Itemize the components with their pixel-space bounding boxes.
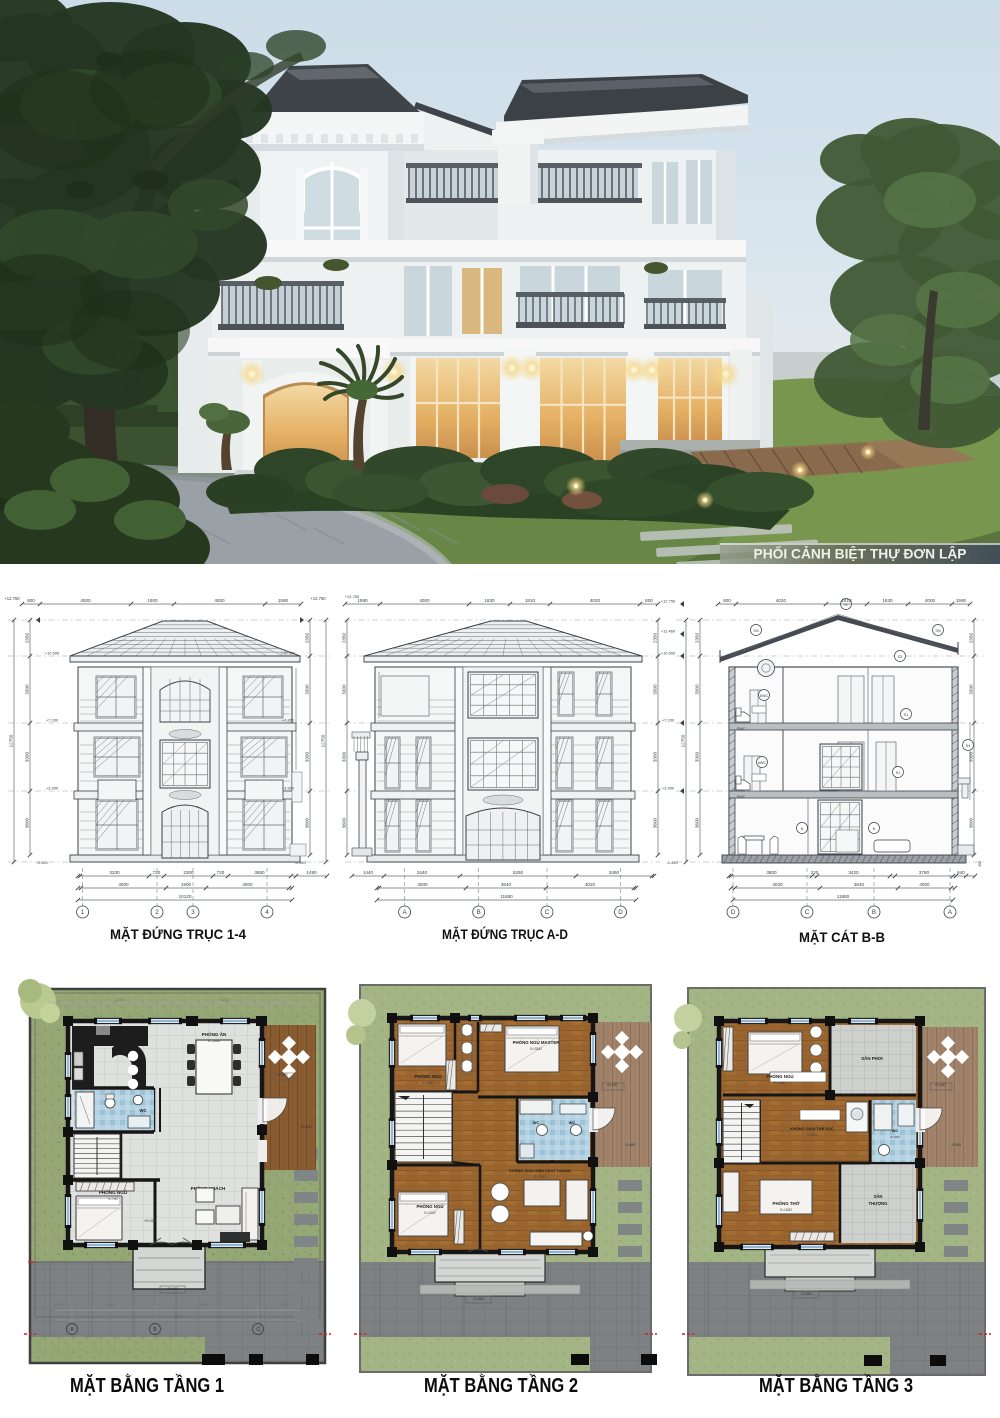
svg-text:3600: 3600 bbox=[25, 817, 30, 828]
svg-text:3300: 3300 bbox=[25, 684, 30, 695]
svg-text:MẶT BẰNG TẦNG 1: MẶT BẰNG TẦNG 1 bbox=[70, 1373, 224, 1397]
svg-text:SÂN PHƠI: SÂN PHƠI bbox=[861, 1056, 883, 1061]
svg-text:3640: 3640 bbox=[854, 882, 865, 887]
svg-text:1900: 1900 bbox=[181, 882, 192, 887]
svg-text:+7.200: +7.200 bbox=[46, 718, 59, 723]
svg-text:M: M bbox=[844, 603, 847, 607]
svg-text:+0.000: +0.000 bbox=[144, 1218, 157, 1223]
svg-text:3300: 3300 bbox=[342, 684, 347, 695]
svg-text:800: 800 bbox=[645, 598, 653, 603]
svg-text:3300: 3300 bbox=[342, 751, 347, 762]
svg-text:+0.150: +0.150 bbox=[276, 1073, 287, 1077]
svg-text:PHÒNG ĂN: PHÒNG ĂN bbox=[202, 1030, 227, 1037]
svg-text:3300: 3300 bbox=[653, 751, 658, 762]
svg-text:4250: 4250 bbox=[116, 997, 126, 1002]
svg-text:-0.450: -0.450 bbox=[472, 1296, 484, 1301]
svg-text:SN: SN bbox=[935, 629, 941, 633]
svg-text:4000: 4000 bbox=[419, 598, 430, 603]
svg-text:+3.900: +3.900 bbox=[46, 786, 59, 791]
svg-text:3600: 3600 bbox=[653, 817, 658, 828]
svg-text:4000: 4000 bbox=[919, 882, 930, 887]
svg-text:2350: 2350 bbox=[969, 632, 974, 643]
svg-text:4000: 4000 bbox=[925, 598, 936, 603]
svg-text:4020: 4020 bbox=[585, 882, 596, 887]
svg-text:S=9M2: S=9M2 bbox=[807, 1133, 817, 1137]
svg-text:3800: 3800 bbox=[766, 870, 777, 875]
svg-text:S1: S1 bbox=[904, 713, 909, 717]
svg-text:2: 2 bbox=[155, 909, 159, 916]
svg-text:+0.150: +0.150 bbox=[934, 1083, 945, 1087]
svg-text:D: D bbox=[618, 909, 623, 916]
svg-text:-0.450: -0.450 bbox=[800, 1291, 812, 1296]
svg-text:-0.450: -0.450 bbox=[36, 860, 48, 865]
svg-text:11880: 11880 bbox=[500, 894, 513, 899]
svg-text:4000: 4000 bbox=[214, 598, 225, 603]
svg-text:+7.200: +7.200 bbox=[282, 718, 295, 723]
svg-text:C: C bbox=[805, 909, 810, 916]
svg-text:S4: S4 bbox=[966, 744, 971, 748]
svg-text:B: B bbox=[872, 909, 876, 916]
svg-text:S=20M2: S=20M2 bbox=[530, 1047, 542, 1051]
svg-text:+0.450: +0.450 bbox=[300, 1125, 311, 1129]
svg-text:450: 450 bbox=[978, 861, 982, 867]
svg-text:S=18M2: S=18M2 bbox=[208, 1039, 221, 1043]
svg-text:-0.450: -0.450 bbox=[951, 1143, 961, 1147]
svg-text:4250: 4250 bbox=[106, 1303, 114, 1307]
svg-text:5200: 5200 bbox=[221, 997, 231, 1002]
svg-text:+11.460: +11.460 bbox=[661, 629, 676, 634]
svg-text:4000: 4000 bbox=[242, 882, 253, 887]
svg-text:WC: WC bbox=[533, 1120, 540, 1125]
svg-text:640: 640 bbox=[957, 870, 965, 875]
svg-text:-0.450: -0.450 bbox=[294, 860, 306, 865]
svg-text:12750: 12750 bbox=[321, 734, 326, 747]
svg-text:2350: 2350 bbox=[695, 632, 700, 643]
svg-text:3600: 3600 bbox=[695, 817, 700, 828]
svg-text:SWC: SWC bbox=[737, 795, 746, 799]
svg-text:3680: 3680 bbox=[254, 870, 265, 875]
svg-text:4020: 4020 bbox=[776, 598, 787, 603]
svg-text:720: 720 bbox=[153, 870, 161, 875]
svg-text:S1: S1 bbox=[896, 771, 901, 775]
svg-text:S=?M2: S=?M2 bbox=[108, 1197, 118, 1201]
svg-text:+3.900: +3.900 bbox=[282, 786, 295, 791]
svg-text:3300: 3300 bbox=[653, 684, 658, 695]
svg-text:+10.500: +10.500 bbox=[661, 651, 676, 656]
svg-text:2350: 2350 bbox=[342, 632, 347, 643]
svg-text:3600: 3600 bbox=[969, 817, 974, 828]
svg-text:3300: 3300 bbox=[695, 684, 700, 695]
svg-text:3330: 3330 bbox=[109, 870, 120, 875]
svg-text:4000: 4000 bbox=[118, 882, 129, 887]
svg-text:3300: 3300 bbox=[695, 751, 700, 762]
svg-text:2350: 2350 bbox=[25, 632, 30, 643]
svg-text:MẶT BẰNG TẦNG 2: MẶT BẰNG TẦNG 2 bbox=[424, 1373, 578, 1397]
svg-text:4020: 4020 bbox=[772, 882, 783, 887]
svg-text:3780: 3780 bbox=[919, 870, 930, 875]
svg-text:1490: 1490 bbox=[306, 870, 317, 875]
svg-text:9600: 9600 bbox=[174, 1315, 182, 1319]
svg-text:S=12M2: S=12M2 bbox=[774, 1081, 786, 1085]
svg-text:KHÔNG GIAN THỂ DỤC: KHÔNG GIAN THỂ DỤC bbox=[790, 1126, 834, 1131]
svg-text:N: N bbox=[873, 827, 876, 831]
svg-text:11880: 11880 bbox=[837, 894, 850, 899]
svg-text:3600: 3600 bbox=[305, 817, 310, 828]
svg-text:3300: 3300 bbox=[305, 684, 310, 695]
svg-text:1830: 1830 bbox=[484, 598, 495, 603]
svg-text:1830: 1830 bbox=[882, 598, 893, 603]
svg-text:3300: 3300 bbox=[25, 751, 30, 762]
svg-text:1900: 1900 bbox=[147, 598, 158, 603]
svg-text:3300: 3300 bbox=[969, 751, 974, 762]
svg-text:1440: 1440 bbox=[363, 870, 374, 875]
svg-text:SN: SN bbox=[753, 629, 759, 633]
svg-text:2300: 2300 bbox=[183, 870, 194, 875]
svg-text:S=11M2: S=11M2 bbox=[422, 1081, 434, 1085]
svg-text:720: 720 bbox=[217, 870, 225, 875]
svg-text:1075: 1075 bbox=[54, 1303, 62, 1307]
svg-text:800: 800 bbox=[27, 598, 35, 603]
svg-text:1590: 1590 bbox=[278, 598, 289, 603]
svg-text:MẶT CÁT B-B: MẶT CÁT B-B bbox=[799, 929, 885, 945]
svg-text:-0.450: -0.450 bbox=[666, 860, 678, 865]
svg-text:3420: 3420 bbox=[848, 870, 859, 875]
svg-text:1590: 1590 bbox=[956, 598, 967, 603]
svg-text:MẶT ĐỨNG TRỤC 1-4: MẶT ĐỨNG TRỤC 1-4 bbox=[110, 925, 246, 942]
svg-text:12750: 12750 bbox=[681, 734, 686, 747]
svg-text:KHÔNG GIAN SINH HOẠT CHUNG: KHÔNG GIAN SINH HOẠT CHUNG bbox=[509, 1168, 571, 1173]
svg-text:PHÒNG NGỦ: PHÒNG NGỦ bbox=[766, 1074, 793, 1079]
svg-text:3300: 3300 bbox=[969, 684, 974, 695]
svg-text:THƯỢNG: THƯỢNG bbox=[869, 1201, 888, 1206]
svg-text:1810: 1810 bbox=[841, 598, 852, 603]
svg-text:S=4M2: S=4M2 bbox=[890, 1135, 900, 1139]
svg-text:PHỐI CẢNH BIỆT THỰ ĐƠN LẬP: PHỐI CẢNH BIỆT THỰ ĐƠN LẬP bbox=[754, 545, 967, 562]
svg-text:12750: 12750 bbox=[9, 734, 14, 747]
svg-text:3300: 3300 bbox=[305, 751, 310, 762]
svg-text:2350: 2350 bbox=[653, 632, 658, 643]
svg-text:S=11M2: S=11M2 bbox=[424, 1211, 436, 1215]
svg-text:B: B bbox=[477, 909, 481, 916]
svg-text:3600: 3600 bbox=[342, 817, 347, 828]
svg-text:3460: 3460 bbox=[609, 870, 620, 875]
svg-text:C: C bbox=[256, 1327, 260, 1333]
svg-text:+12.750: +12.750 bbox=[661, 599, 676, 604]
svg-text:SWC: SWC bbox=[737, 727, 746, 731]
svg-text:N: N bbox=[801, 827, 804, 831]
svg-text:4000: 4000 bbox=[417, 882, 428, 887]
svg-text:220: 220 bbox=[811, 870, 819, 875]
svg-text:SÂN: SÂN bbox=[874, 1194, 883, 1199]
svg-text:+3.900: +3.900 bbox=[662, 786, 675, 791]
svg-text:WC: WC bbox=[569, 1120, 576, 1125]
svg-text:+12.750: +12.750 bbox=[345, 594, 360, 599]
svg-text:PHÒNG THỜ: PHÒNG THỜ bbox=[773, 1201, 800, 1206]
svg-text:3075: 3075 bbox=[281, 1303, 289, 1307]
svg-text:5200: 5200 bbox=[201, 1303, 209, 1307]
svg-text:S3: S3 bbox=[898, 655, 903, 659]
svg-text:4020: 4020 bbox=[590, 598, 601, 603]
svg-text:WC: WC bbox=[140, 1108, 147, 1113]
svg-text:+0.150: +0.150 bbox=[606, 1083, 617, 1087]
svg-text:-0.450: -0.450 bbox=[625, 1143, 635, 1147]
svg-text:6WC: 6WC bbox=[760, 694, 769, 698]
svg-text:MẶT BẰNG TẦNG 3: MẶT BẰNG TẦNG 3 bbox=[759, 1373, 913, 1397]
svg-text:3: 3 bbox=[191, 909, 195, 916]
svg-text:S=17M2: S=17M2 bbox=[534, 1175, 546, 1179]
svg-text:3440: 3440 bbox=[417, 870, 428, 875]
svg-text:+10.500: +10.500 bbox=[281, 651, 296, 656]
svg-text:D: D bbox=[731, 909, 736, 916]
svg-text:C: C bbox=[545, 909, 550, 916]
svg-text:PHÒNG NGỦ MASTER: PHÒNG NGỦ MASTER bbox=[513, 1040, 561, 1045]
svg-text:6WC: 6WC bbox=[758, 761, 767, 765]
svg-text:+7.200: +7.200 bbox=[662, 718, 675, 723]
svg-text:4000: 4000 bbox=[80, 598, 91, 603]
svg-text:2350: 2350 bbox=[305, 632, 310, 643]
svg-text:1: 1 bbox=[81, 909, 85, 916]
svg-text:PHÒNG NGỦ: PHÒNG NGỦ bbox=[416, 1204, 443, 1209]
svg-text:PHÒNG NGỦ: PHÒNG NGỦ bbox=[99, 1188, 128, 1195]
svg-text:1810: 1810 bbox=[525, 598, 536, 603]
svg-text:4: 4 bbox=[265, 909, 269, 916]
svg-text:+10.500: +10.500 bbox=[45, 651, 60, 656]
svg-text:+0.450: +0.450 bbox=[166, 1286, 179, 1291]
svg-text:PHÒNG NGỦ: PHÒNG NGỦ bbox=[414, 1074, 441, 1079]
svg-text:MẶT ĐỨNG TRỤC A-D: MẶT ĐỨNG TRỤC A-D bbox=[442, 925, 568, 942]
svg-text:S=12M2: S=12M2 bbox=[780, 1208, 792, 1212]
svg-text:WC: WC bbox=[892, 1128, 899, 1133]
svg-text:+12.750: +12.750 bbox=[310, 596, 326, 601]
svg-text:3640: 3640 bbox=[501, 882, 512, 887]
svg-text:+12.750: +12.750 bbox=[4, 596, 20, 601]
svg-text:800: 800 bbox=[723, 598, 731, 603]
svg-text:10120: 10120 bbox=[179, 894, 192, 899]
svg-text:5260: 5260 bbox=[513, 870, 524, 875]
